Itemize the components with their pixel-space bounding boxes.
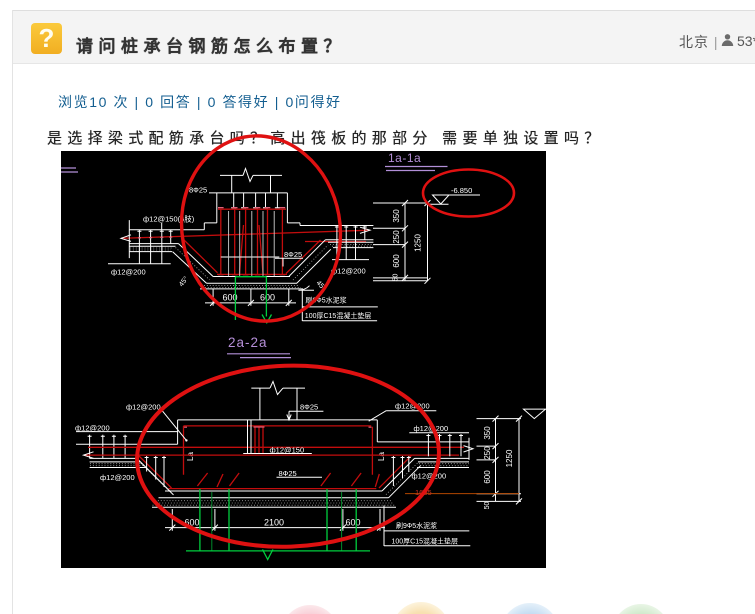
svg-text:ф12@200: ф12@200 (126, 403, 161, 412)
svg-text:100厚C15混凝土垫层: 100厚C15混凝土垫层 (392, 536, 459, 545)
svg-text:50: 50 (484, 502, 491, 510)
svg-text:2a-2a: 2a-2a (228, 335, 268, 350)
svg-text:ф12@200: ф12@200 (412, 472, 447, 481)
svg-text:600: 600 (260, 293, 275, 303)
svg-text:刷9Ф5水泥浆: 刷9Ф5水泥浆 (396, 521, 437, 530)
svg-text:La: La (186, 452, 195, 461)
svg-text:8Ф25: 8Ф25 (300, 402, 318, 411)
svg-text:8Ф25: 8Ф25 (189, 186, 207, 195)
svg-text:ф12@200: ф12@200 (111, 268, 146, 277)
svg-text:ф12@200: ф12@200 (100, 473, 135, 482)
svg-text:2100: 2100 (264, 517, 284, 527)
svg-text:-6.850: -6.850 (451, 186, 472, 195)
svg-text:50: 50 (393, 274, 400, 282)
svg-text:8Ф25: 8Ф25 (284, 250, 302, 259)
svg-text:600: 600 (483, 470, 492, 484)
svg-text:ф12@150(6肢): ф12@150(6肢) (143, 214, 195, 224)
svg-text:La: La (377, 452, 386, 461)
svg-text:600: 600 (392, 254, 401, 268)
svg-text:1250: 1250 (414, 234, 423, 252)
svg-text:600: 600 (346, 517, 361, 527)
svg-text:ф12@200: ф12@200 (75, 424, 110, 433)
svg-text:1250: 1250 (505, 449, 514, 467)
svg-text:1a-1a: 1a-1a (388, 151, 421, 165)
svg-text:250: 250 (483, 446, 492, 460)
svg-text:100厚C15混凝土垫层: 100厚C15混凝土垫层 (305, 311, 372, 320)
svg-text:8Ф25: 8Ф25 (279, 469, 297, 478)
svg-text:350: 350 (483, 426, 492, 440)
svg-text:350: 350 (392, 209, 401, 223)
svg-text:250: 250 (392, 230, 401, 244)
